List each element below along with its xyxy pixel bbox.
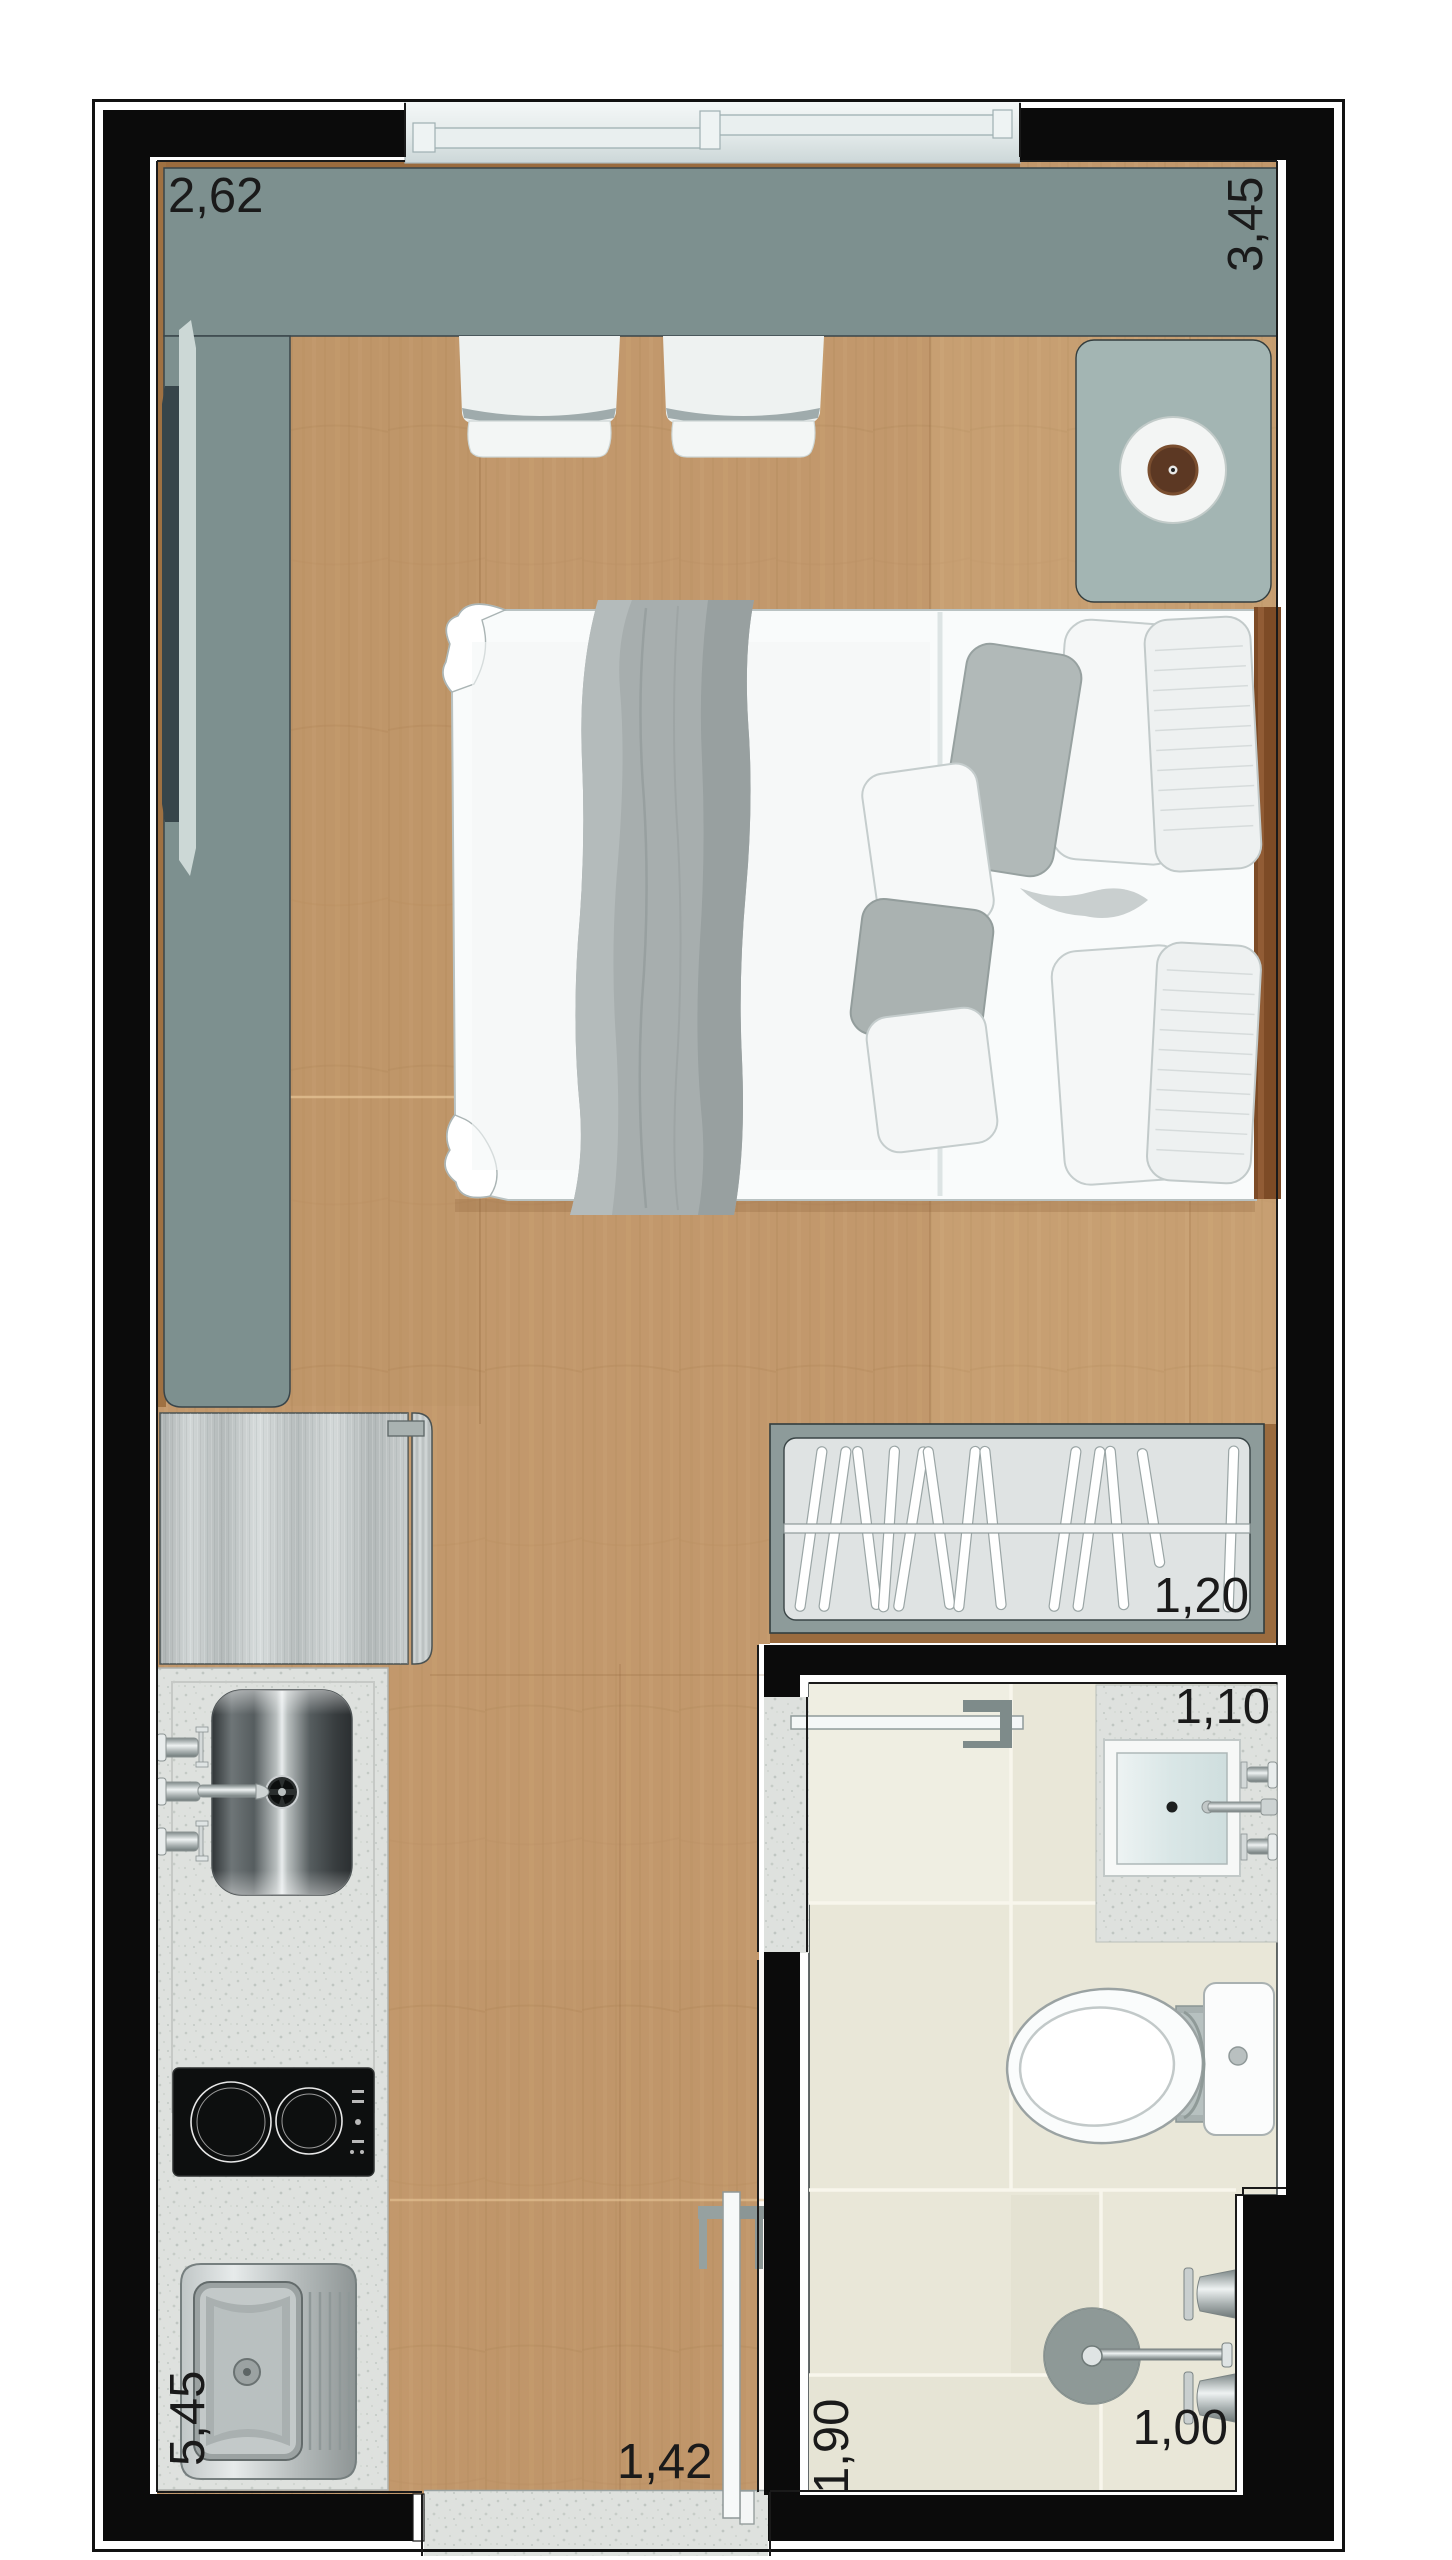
svg-text:1,20: 1,20 — [1154, 1569, 1249, 1623]
svg-text:2,62: 2,62 — [168, 169, 263, 223]
svg-text:3,45: 3,45 — [1219, 177, 1273, 272]
svg-text:1,42: 1,42 — [617, 2435, 712, 2489]
svg-text:1,10: 1,10 — [1175, 1680, 1270, 1734]
svg-text:5,45: 5,45 — [161, 2371, 215, 2466]
svg-text:1,90: 1,90 — [805, 2399, 859, 2494]
svg-text:1,00: 1,00 — [1133, 2401, 1228, 2455]
